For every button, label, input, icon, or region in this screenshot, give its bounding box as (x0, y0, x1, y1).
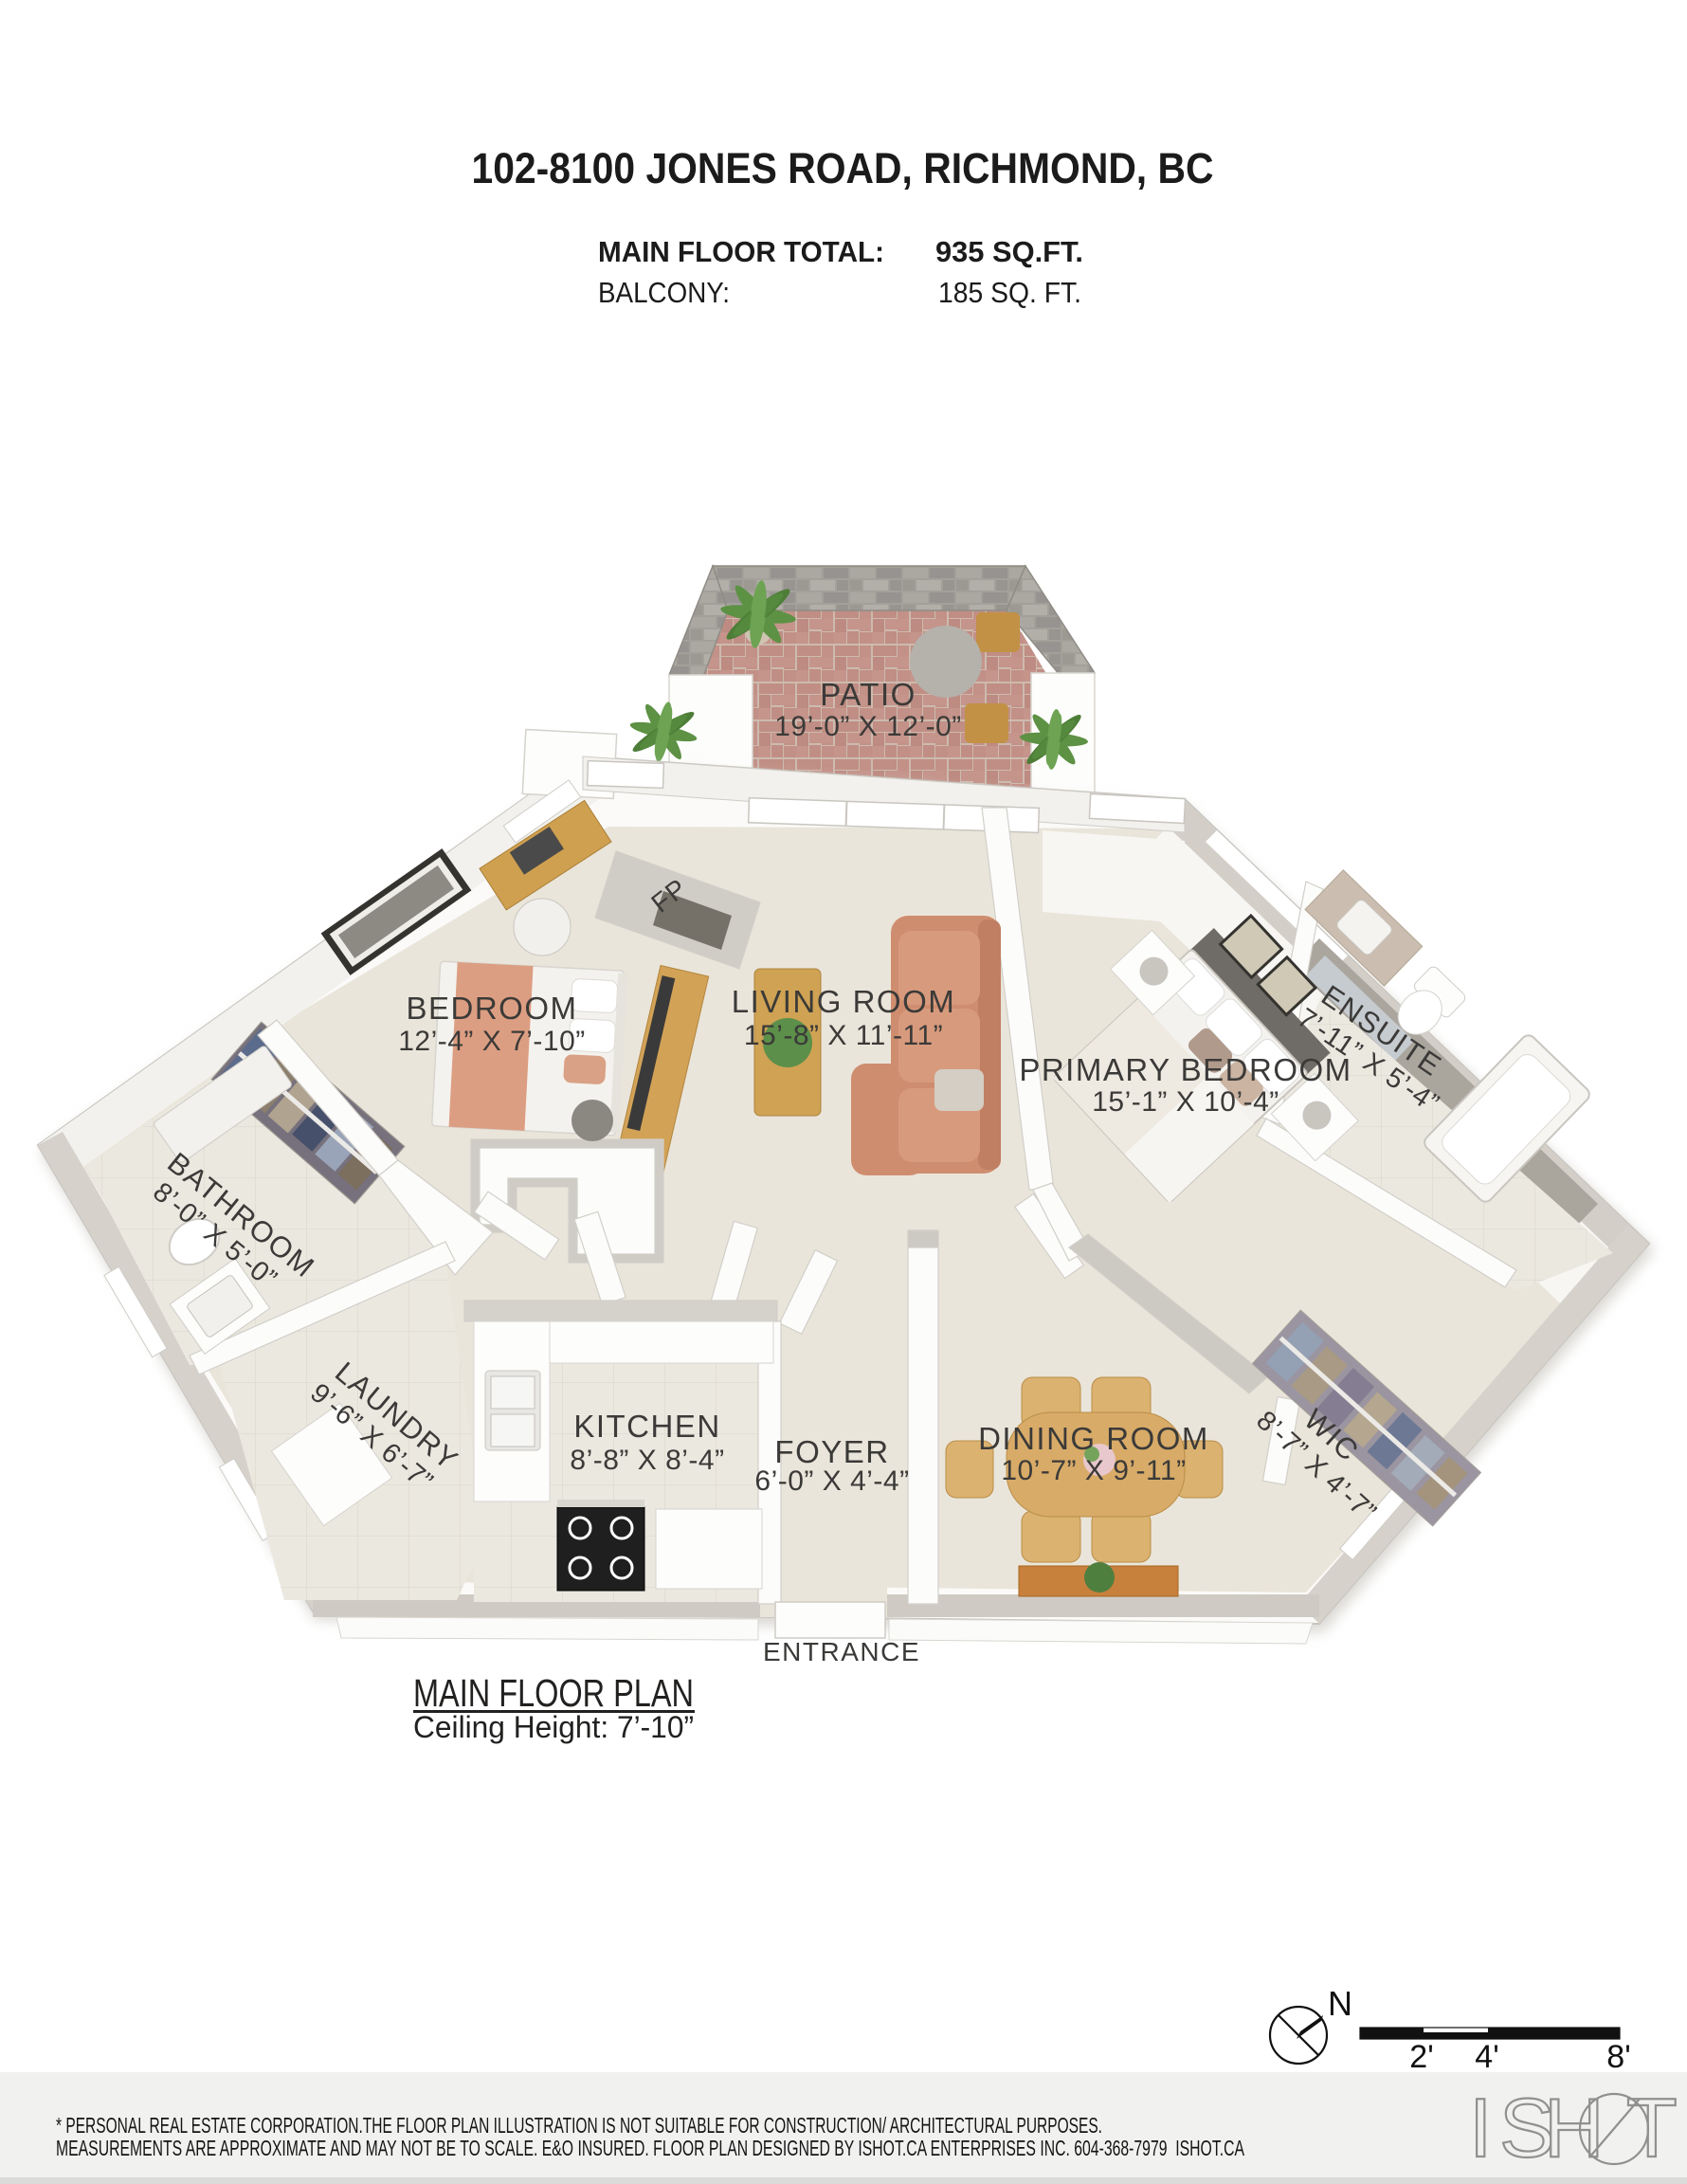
svg-text:2': 2' (1409, 2039, 1433, 2075)
svg-text:H: H (1544, 2081, 1605, 2175)
svg-text:MEASUREMENTS ARE APPROXIMATE A: MEASUREMENTS ARE APPROXIMATE AND MAY NOT… (56, 2136, 1244, 2160)
svg-text:102-8100 JONES ROAD, RICHMOND,: 102-8100 JONES ROAD, RICHMOND, BC (472, 144, 1214, 192)
svg-text:KITCHEN: KITCHEN (573, 1409, 720, 1444)
svg-text:* PERSONAL REAL ESTATE CORPORA: * PERSONAL REAL ESTATE CORPORATION.THE F… (56, 2113, 1102, 2138)
svg-text:FOYER: FOYER (774, 1434, 889, 1469)
svg-text:BALCONY:: BALCONY: (598, 276, 730, 309)
svg-text:15’-8” X 11’-11”: 15’-8” X 11’-11” (744, 1020, 943, 1051)
svg-text:DINING ROOM: DINING ROOM (978, 1421, 1209, 1456)
svg-text:BEDROOM: BEDROOM (406, 991, 577, 1026)
svg-text:I: I (1469, 2081, 1492, 2175)
svg-text:15’-1” X 10’-4”: 15’-1” X 10’-4” (1092, 1086, 1279, 1118)
svg-text:MAIN FLOOR TOTAL:: MAIN FLOOR TOTAL: (598, 235, 884, 268)
svg-text:19’-0” X 12’-0”: 19’-0” X 12’-0” (774, 711, 962, 742)
svg-text:PRIMARY BEDROOM: PRIMARY BEDROOM (1019, 1052, 1351, 1087)
svg-text:8’-8” X 8’-4”: 8’-8” X 8’-4” (570, 1445, 724, 1476)
svg-text:185 SQ. FT.: 185 SQ. FT. (938, 276, 1081, 309)
svg-text:12’-4” X 7’-10”: 12’-4” X 7’-10” (398, 1026, 586, 1057)
svg-text:8': 8' (1606, 2039, 1630, 2075)
svg-text:N: N (1328, 1984, 1352, 2023)
svg-text:6’-0” X 4’-4”: 6’-0” X 4’-4” (754, 1465, 909, 1497)
svg-text:10’-7” X 9’-11”: 10’-7” X 9’-11” (1001, 1455, 1186, 1486)
svg-text:935 SQ.FT.: 935 SQ.FT. (935, 235, 1083, 268)
svg-text:ENTRANCE: ENTRANCE (763, 1637, 920, 1666)
svg-text:T: T (1626, 2081, 1678, 2175)
svg-text:LIVING ROOM: LIVING ROOM (732, 984, 956, 1019)
svg-text:Ceiling Height: 7’-10”: Ceiling Height: 7’-10” (413, 1710, 694, 1744)
svg-text:PATIO: PATIO (820, 677, 916, 712)
svg-text:4': 4' (1475, 2039, 1498, 2075)
svg-text:MAIN FLOOR PLAN: MAIN FLOOR PLAN (413, 1671, 694, 1715)
